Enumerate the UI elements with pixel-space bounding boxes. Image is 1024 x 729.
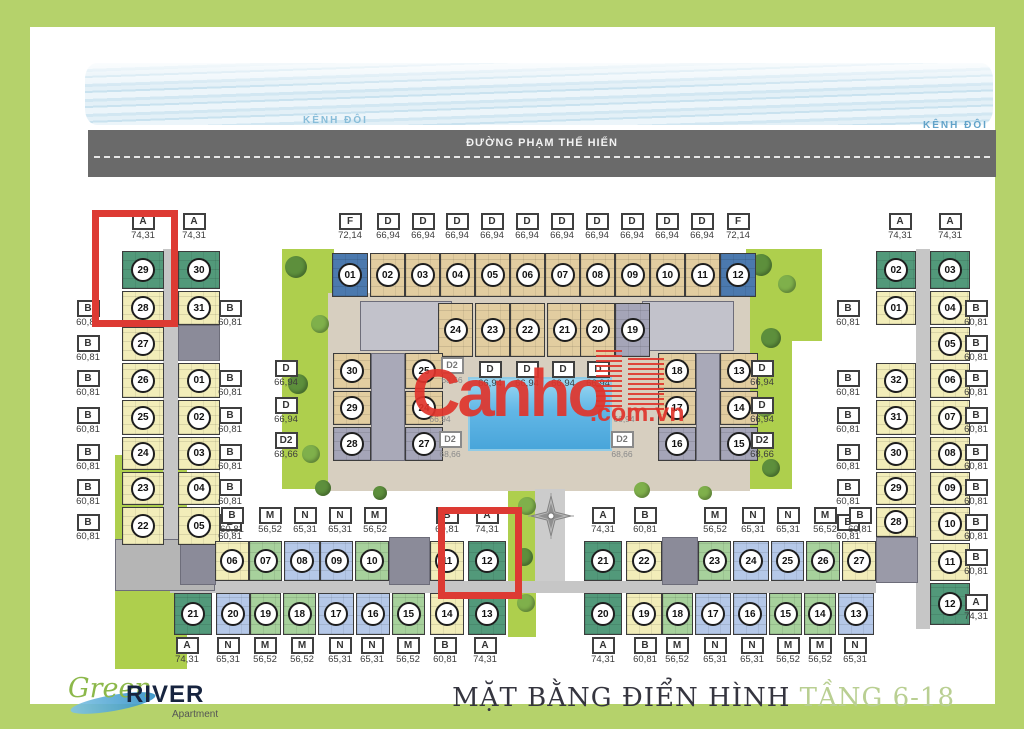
type-label-A: A74,31 [580,505,626,535]
unit-number: 16 [361,602,385,626]
unit-number: 17 [324,602,348,626]
unit-number: 07 [551,263,575,287]
type-area: 66,94 [263,415,309,425]
type-area: 60,81 [65,353,111,363]
unit-number: 16 [665,432,689,456]
highlight-box [438,507,522,599]
unit-14: 14 [430,593,464,635]
unit-28: 28 [333,427,371,461]
type-label-A: A74,31 [953,592,999,622]
unit-22: 22 [510,303,545,357]
tree-icon [634,482,650,498]
type-letter: D [751,397,774,414]
type-letter: A [889,213,912,230]
unit-01: 01 [876,291,916,325]
type-letter: B [965,444,988,461]
tree-icon [373,486,387,500]
type-label-A: A74,31 [462,635,508,665]
type-letter: B [837,444,860,461]
type-area: 56,52 [352,525,398,535]
type-area: 74,31 [927,231,973,241]
type-letter: A [176,637,199,654]
type-label-D: D66,94 [575,359,621,389]
tree-icon [761,328,781,348]
unit-number: 27 [847,549,871,573]
type-area: 60,81 [207,425,253,435]
type-letter: M [291,637,314,654]
type-area: 60,81 [953,462,999,472]
unit-number: 25 [131,406,155,430]
type-label-B: B60,81 [825,442,871,472]
brand-logo: Green RIVER Apartment [68,673,238,729]
type-label-B: B60,81 [65,442,111,472]
unit-30: 30 [178,251,220,289]
unit-02: 02 [370,253,405,297]
unit-16: 16 [733,593,767,635]
unit-18: 18 [662,593,693,635]
type-area: 60,81 [65,497,111,507]
type-label-B: B60,81 [837,505,883,535]
type-area: 68,66 [739,450,785,460]
type-area: 60,81 [65,388,111,398]
type-letter: D [479,361,502,378]
tree-icon [698,486,712,500]
type-letter: B [219,300,242,317]
type-area: 74,31 [462,655,508,665]
unit-number: 20 [591,602,615,626]
type-letter: M [814,507,837,524]
type-letter: D [586,213,609,230]
type-letter: A [474,637,497,654]
type-area: 74,31 [953,612,999,622]
unit-19: 19 [250,593,281,635]
unit-16: 16 [658,427,696,461]
unit-19: 19 [615,303,650,357]
type-area: 60,81 [65,462,111,472]
unit-number: 23 [481,318,505,342]
type-label-D2: D268,66 [263,430,309,460]
type-letter: D [621,213,644,230]
unit-26: 26 [122,363,164,398]
core-left-wing [178,325,220,361]
type-letter: F [339,213,362,230]
type-letter: N [294,507,317,524]
type-letter: B [434,637,457,654]
unit-number: 08 [290,549,314,573]
type-letter: B [219,407,242,424]
type-area: 60,81 [825,388,871,398]
unit-20: 20 [584,593,622,635]
highlight-box [92,210,178,327]
type-letter: B [219,479,242,496]
type-area: 60,81 [825,425,871,435]
unit-08: 08 [284,541,320,581]
type-label-F: F72,14 [715,211,761,241]
type-letter: B [965,549,988,566]
type-label-B: B60,81 [65,512,111,542]
core-top-2 [642,301,734,351]
unit-number: 27 [131,332,155,356]
type-label-B: B60,81 [65,333,111,363]
unit-18: 18 [283,593,316,635]
compass-icon [528,493,574,539]
unit-23: 23 [122,472,164,505]
unit-27: 27 [842,541,876,581]
unit-number: 03 [411,263,435,287]
unit-number: 22 [632,549,656,573]
unit-number: 21 [591,549,615,573]
type-area: 66,94 [739,378,785,388]
poster-page: KÊNH ĐÔI KÊNH ĐÔI ĐƯỜNG PHẠM THẾ HIỂN 01… [30,27,995,704]
unit-number: 11 [691,263,715,287]
unit-19: 19 [626,593,662,635]
type-area: 66,94 [575,379,621,389]
type-area: 66,94 [739,415,785,425]
unit-number: 09 [325,549,349,573]
type-area: 60,81 [837,525,883,535]
type-letter: D [412,213,435,230]
type-letter: M [704,507,727,524]
type-letter: M [666,637,689,654]
type-letter: B [965,479,988,496]
type-letter: M [397,637,420,654]
unit-16: 16 [356,593,390,635]
type-letter: B [837,407,860,424]
unit-number: 32 [884,369,908,393]
type-letter: B [77,407,100,424]
type-label-B: B60,81 [825,477,871,507]
unit-15: 15 [392,593,425,635]
unit-number: 23 [131,477,155,501]
unit-18: 18 [658,353,696,389]
unit-number: 07 [254,549,278,573]
unit-06: 06 [510,253,545,297]
type-label-B: B60,81 [825,298,871,328]
tree-icon [311,315,329,333]
type-label-D: 66,94 [601,413,647,424]
unit-24: 24 [733,541,769,581]
type-letter: D2 [439,431,462,448]
unit-number: 02 [376,263,400,287]
unit-number: 30 [187,258,211,282]
type-area: 68,66 [263,450,309,460]
type-label-B: B60,81 [953,442,999,472]
type-label-D: D66,94 [739,395,785,425]
tree-icon [778,275,796,293]
type-area: 60,81 [953,425,999,435]
unit-21: 21 [584,541,622,581]
tree-icon [315,480,331,496]
unit-number: 19 [621,318,645,342]
type-letter: D [377,213,400,230]
unit-number: 29 [884,477,908,501]
unit-21: 21 [547,303,582,357]
unit-07: 07 [545,253,580,297]
unit-17: 17 [695,593,731,635]
unit-22: 22 [122,507,164,545]
unit-number: 02 [884,258,908,282]
type-letter: D2 [611,431,634,448]
unit-14: 14 [804,593,836,635]
type-label-B: B60,81 [953,405,999,435]
type-label-B: B60,81 [207,405,253,435]
type-label-B: B60,81 [825,405,871,435]
unit-20: 20 [216,593,250,635]
type-area: 60,81 [65,425,111,435]
type-letter: D [275,397,298,414]
plan-title-main: MẶT BẰNG ĐIỂN HÌNH [452,683,790,713]
unit-number: 17 [665,396,689,420]
type-label-B: B60,81 [953,368,999,398]
type-area: 68,66 [599,449,645,459]
unit-number: 18 [666,602,690,626]
unit-03: 03 [405,253,440,297]
type-area: 74,31 [580,525,626,535]
type-letter: B [965,335,988,352]
unit-number: 20 [221,602,245,626]
type-letter: B [221,507,244,524]
type-area: 74,31 [164,655,210,665]
unit-number: 10 [360,549,384,573]
type-letter: A [592,507,615,524]
type-area: 74,31 [877,231,923,241]
unit-29: 29 [876,472,916,505]
type-label-B: B60,81 [207,442,253,472]
type-letter: D2 [275,432,298,449]
type-letter: B [837,370,860,387]
unit-08: 08 [580,253,615,297]
type-area: 60,81 [953,497,999,507]
unit-01: 01 [332,253,368,297]
type-label-B: B60,81 [953,333,999,363]
type-letter: N [777,507,800,524]
unit-number: 26 [811,549,835,573]
unit-number: 24 [739,549,763,573]
type-label-N: N65,31 [832,635,878,665]
type-letter: D [587,361,610,378]
unit-number: 01 [338,263,362,287]
type-label-B: B60,81 [207,368,253,398]
type-letter: B [77,514,100,531]
type-label-D: D66,94 [263,395,309,425]
type-letter: B [965,514,988,531]
type-area: 72,14 [715,231,761,241]
unit-number: 18 [665,359,689,383]
unit-13: 13 [838,593,874,635]
unit-number: 19 [254,602,278,626]
unit-number: 25 [776,549,800,573]
unit-number: 12 [726,263,750,287]
type-letter: B [77,444,100,461]
type-label-A: A74,31 [580,635,626,665]
type-letter: A [965,594,988,611]
unit-number: 22 [131,514,155,538]
unit-10: 10 [650,253,685,297]
unit-04: 04 [440,253,475,297]
type-label-B: B60,81 [65,477,111,507]
unit-number: 04 [446,263,470,287]
unit-number: 23 [703,549,727,573]
unit-31: 31 [876,400,916,435]
unit-number: 08 [586,263,610,287]
unit-number: 28 [340,432,364,456]
unit-27: 27 [122,327,164,361]
unit-number: 19 [632,602,656,626]
unit-number: 28 [884,510,908,534]
unit-12: 12 [720,253,756,297]
plan-title-floors: TẦNG 6-18 [800,683,955,713]
type-letter: F [727,213,750,230]
type-letter: D [691,213,714,230]
unit-25: 25 [771,541,804,581]
unit-20: 20 [580,303,615,357]
unit-32: 32 [876,363,916,398]
type-letter: M [809,637,832,654]
unit-number: 09 [621,263,645,287]
type-letter: N [329,507,352,524]
unit-24: 24 [438,303,473,357]
type-letter: D [751,360,774,377]
type-area: 60,81 [953,388,999,398]
unit-13: 13 [468,593,506,635]
unit-09: 09 [615,253,650,297]
type-area: 60,81 [953,318,999,328]
type-label-B: B60,81 [622,505,668,535]
core-center-right [696,353,720,461]
unit-number: 06 [516,263,540,287]
type-label-B: B60,81 [65,368,111,398]
type-label-B: B60,81 [953,477,999,507]
type-letter: N [217,637,240,654]
tree-icon [285,256,307,278]
logo-apartment-text: Apartment [172,709,218,720]
unit-10: 10 [355,541,389,581]
type-area: 60,81 [825,318,871,328]
unit-number: 06 [220,549,244,573]
unit-number: 13 [844,602,868,626]
corridor-bottom [170,581,876,593]
unit-30: 30 [876,437,916,470]
type-label-D: D66,94 [263,358,309,388]
type-letter: M [364,507,387,524]
unit-number: 20 [586,318,610,342]
unit-09: 09 [320,541,353,581]
plan-title: MẶT BẰNG ĐIỂN HÌNH TẦNG 6-18 [452,683,955,713]
unit-number: 15 [774,602,798,626]
type-area: 60,81 [207,388,253,398]
type-letter: A [592,637,615,654]
type-label-D2: D268,66 [427,429,473,459]
unit-number: 18 [288,602,312,626]
type-label-D2: D268,66 [599,429,645,459]
unit-26: 26 [806,541,840,581]
type-letter: B [634,507,657,524]
type-letter: D [516,361,539,378]
type-label-B: B60,81 [65,405,111,435]
unit-23: 23 [475,303,510,357]
type-label-B: B60,81 [207,298,253,328]
unit-30: 30 [333,353,371,389]
unit-29: 29 [333,391,371,425]
core-center-left [371,353,405,461]
unit-17: 17 [318,593,354,635]
unit-17: 17 [658,391,696,425]
type-letter: B [849,507,872,524]
type-letter: B [77,479,100,496]
type-letter: B [219,370,242,387]
type-letter: N [361,637,384,654]
type-area: 68,66 [427,449,473,459]
type-letter: M [254,637,277,654]
type-area: 60,81 [825,462,871,472]
type-label-B: B60,81 [953,547,999,577]
unit-24: 24 [122,437,164,470]
type-letter: B [219,444,242,461]
unit-number: 05 [481,263,505,287]
unit-number: 22 [516,318,540,342]
unit-number: 30 [884,442,908,466]
unit-number: 24 [131,442,155,466]
unit-number: 15 [397,602,421,626]
unit-number: 16 [738,602,762,626]
corridor-right-wing [916,249,930,629]
unit-05: 05 [475,253,510,297]
type-label-A: A74,31 [927,211,973,241]
type-label-D: D66,94 [739,358,785,388]
type-letter: N [844,637,867,654]
type-letter: A [183,213,206,230]
unit-02: 02 [876,251,916,289]
type-area: 60,81 [953,532,999,542]
unit-06: 06 [215,541,249,581]
type-area: 66,94 [417,414,463,424]
type-letter: D2 [441,357,464,374]
type-letter: N [704,637,727,654]
unit-number: 17 [701,602,725,626]
type-letter: D [446,213,469,230]
type-letter: B [965,407,988,424]
type-letter: N [742,507,765,524]
type-area: 60,81 [953,353,999,363]
type-label-B: B60,81 [953,512,999,542]
core-bl-block [389,537,430,585]
unit-number: 01 [884,296,908,320]
tree-icon [762,459,780,477]
type-label-B: B60,81 [207,477,253,507]
type-area: 60,81 [65,532,111,542]
unit-23: 23 [698,541,731,581]
type-letter: D2 [751,432,774,449]
type-label-A: A74,31 [877,211,923,241]
type-area: 60,81 [207,318,253,328]
unit-11: 11 [685,253,720,297]
type-letter: D [552,361,575,378]
type-area: 74,31 [580,655,626,665]
unit-22: 22 [626,541,662,581]
unit-number: 13 [475,602,499,626]
type-letter: B [837,300,860,317]
unit-number: 21 [181,602,205,626]
type-area: 66,94 [601,414,647,424]
unit-03: 03 [930,251,970,289]
unit-15: 15 [769,593,802,635]
type-letter: N [741,637,764,654]
logo-river-text: RIVER [126,681,204,709]
unit-number: 24 [444,318,468,342]
unit-number: 30 [340,359,364,383]
type-letter: D [481,213,504,230]
type-letter: D [551,213,574,230]
